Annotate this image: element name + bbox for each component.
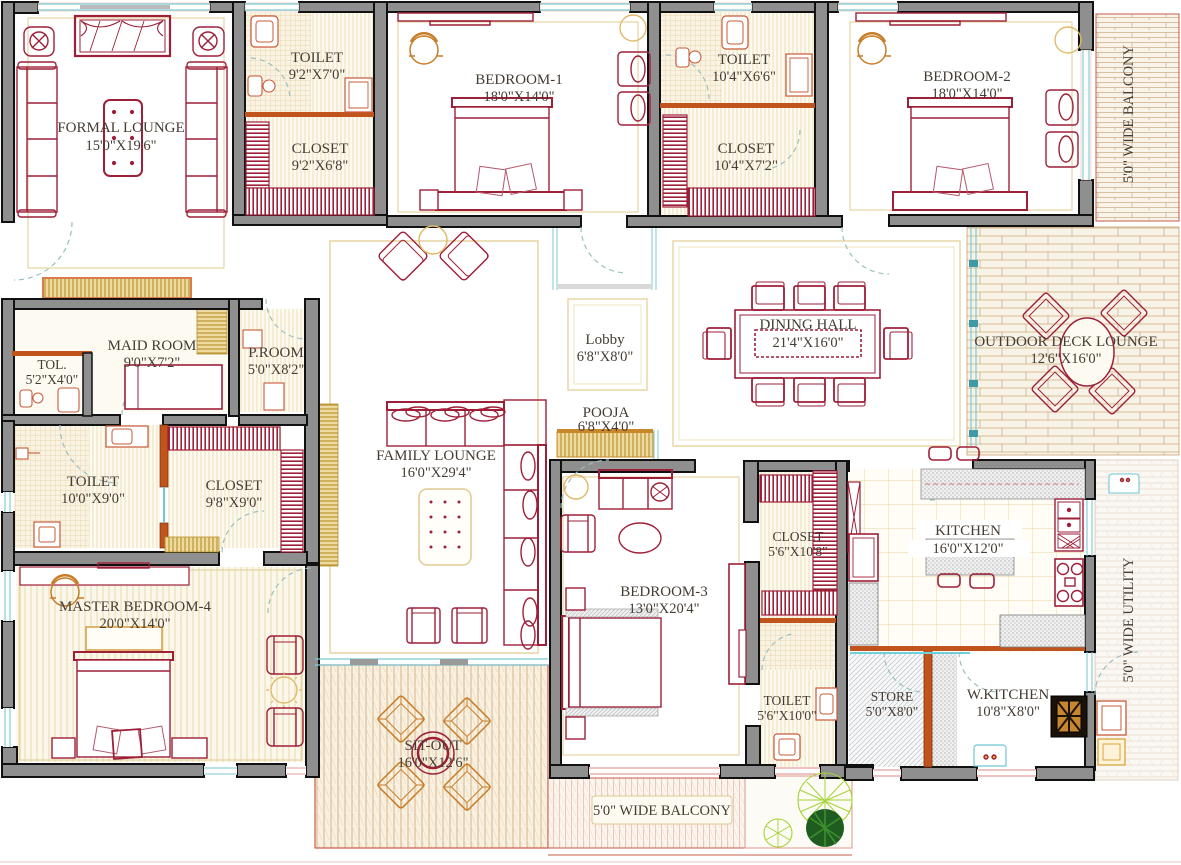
- svg-text:21'4"X16'0": 21'4"X16'0": [772, 335, 843, 351]
- svg-text:16'0"X29'4": 16'0"X29'4": [400, 465, 471, 481]
- svg-text:16'0"X12'0": 16'0"X12'0": [932, 541, 1003, 557]
- svg-text:CLOSET: CLOSET: [206, 478, 263, 494]
- svg-text:6'8"X4'0": 6'8"X4'0": [578, 419, 635, 435]
- svg-text:CLOSET: CLOSET: [292, 141, 349, 157]
- svg-text:16'0"X12'6": 16'0"X12'6": [397, 755, 468, 771]
- svg-text:20'0"X14'0": 20'0"X14'0": [99, 616, 170, 632]
- svg-text:BEDROOM-2: BEDROOM-2: [923, 69, 1011, 85]
- svg-text:9'0"X7'2": 9'0"X7'2": [124, 355, 181, 371]
- svg-text:BEDROOM-1: BEDROOM-1: [475, 72, 563, 88]
- svg-text:10'8"X8'0": 10'8"X8'0": [976, 704, 1040, 720]
- svg-text:P.ROOM: P.ROOM: [248, 345, 303, 361]
- svg-text:10'0"X9'0": 10'0"X9'0": [61, 491, 125, 507]
- svg-text:9'2"X6'8": 9'2"X6'8": [292, 158, 349, 174]
- svg-text:5'0"X8'2": 5'0"X8'2": [248, 362, 305, 378]
- svg-text:5'0" WIDE BALCONY: 5'0" WIDE BALCONY: [593, 803, 731, 819]
- svg-text:5'6"X10'8": 5'6"X10'8": [768, 544, 827, 559]
- svg-text:5'0" WIDE UTILITY: 5'0" WIDE UTILITY: [1121, 557, 1137, 683]
- svg-text:5'2"X4'0": 5'2"X4'0": [26, 372, 79, 387]
- svg-text:15'0"X19'6": 15'0"X19'6": [85, 138, 156, 154]
- svg-text:5'6"X10'0": 5'6"X10'0": [757, 708, 816, 723]
- svg-text:FAMILY LOUNGE: FAMILY LOUNGE: [376, 448, 496, 464]
- svg-text:MAID ROOM: MAID ROOM: [108, 338, 197, 354]
- svg-text:5'0" WIDE BALCONY: 5'0" WIDE BALCONY: [1121, 44, 1137, 182]
- svg-text:KITCHEN: KITCHEN: [935, 523, 1001, 539]
- svg-text:TOILET: TOILET: [67, 474, 119, 490]
- svg-text:OUTDOOR DECK LOUNGE: OUTDOOR DECK LOUNGE: [974, 334, 1157, 350]
- svg-text:MASTER BEDROOM-4: MASTER BEDROOM-4: [59, 599, 212, 615]
- svg-text:FORMAL LOUNGE: FORMAL LOUNGE: [57, 120, 184, 136]
- svg-text:10'4"X6'6": 10'4"X6'6": [712, 69, 776, 85]
- svg-text:TOL.: TOL.: [37, 357, 66, 372]
- svg-text:18'0"X14'0": 18'0"X14'0": [931, 86, 1002, 102]
- svg-text:DINING HALL: DINING HALL: [759, 317, 856, 333]
- svg-text:TOILET: TOILET: [718, 52, 770, 68]
- svg-text:TOILET: TOILET: [291, 50, 343, 66]
- svg-text:18'0"X14'0": 18'0"X14'0": [483, 89, 554, 105]
- svg-text:SIT-OUT: SIT-OUT: [405, 738, 462, 754]
- svg-text:W.KITCHEN: W.KITCHEN: [967, 687, 1050, 703]
- svg-text:CLOSET: CLOSET: [718, 141, 775, 157]
- svg-text:12'6"X16'0": 12'6"X16'0": [1030, 351, 1101, 367]
- svg-text:CLOSET: CLOSET: [772, 529, 824, 544]
- svg-text:10'4"X7'2": 10'4"X7'2": [714, 158, 778, 174]
- svg-text:6'8"X8'0": 6'8"X8'0": [577, 349, 634, 365]
- svg-text:BEDROOM-3: BEDROOM-3: [620, 584, 708, 600]
- svg-text:5'0"X8'0": 5'0"X8'0": [866, 704, 919, 719]
- svg-text:TOILET: TOILET: [764, 693, 812, 708]
- svg-text:9'8"X9'0": 9'8"X9'0": [206, 495, 263, 511]
- svg-text:STORE: STORE: [871, 689, 914, 704]
- svg-text:Lobby: Lobby: [585, 332, 625, 348]
- svg-text:13'0"X20'4": 13'0"X20'4": [628, 601, 699, 617]
- svg-text:9'2"X7'0": 9'2"X7'0": [289, 67, 346, 83]
